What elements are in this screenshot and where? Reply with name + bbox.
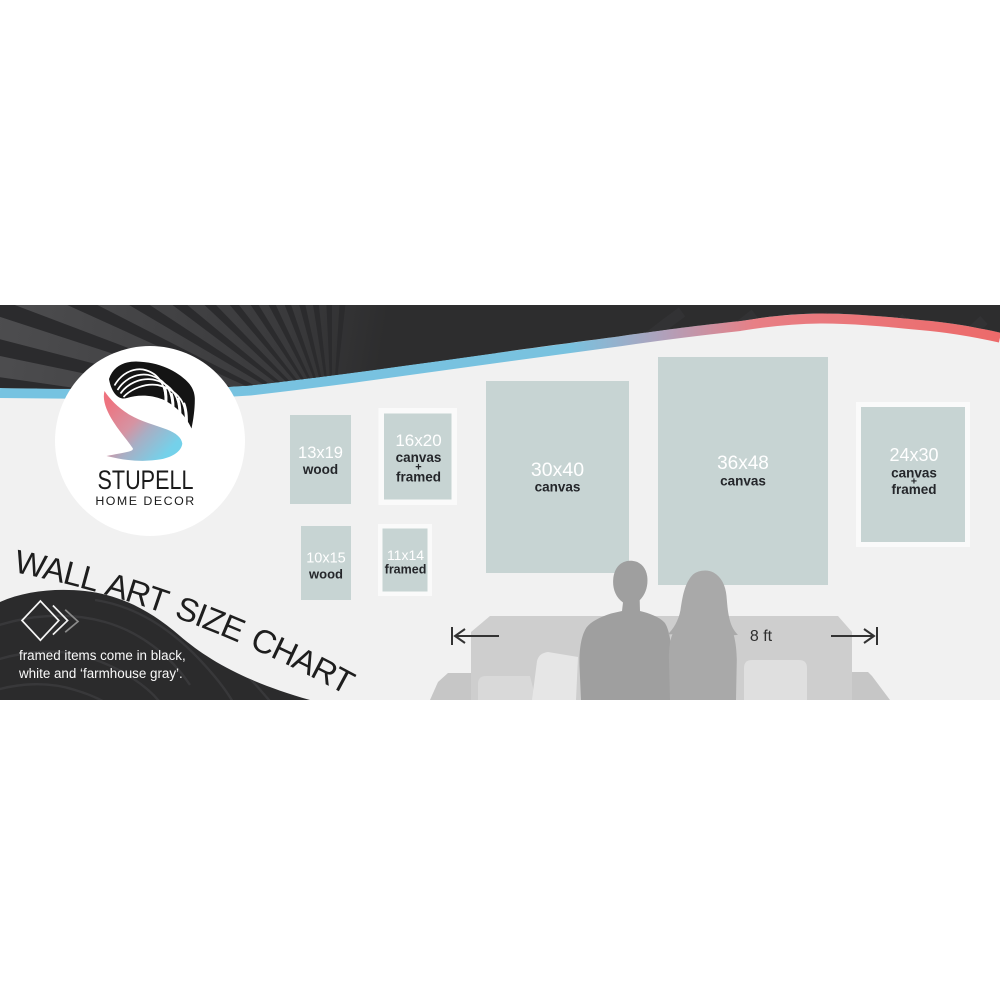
svg-text:11x14: 11x14 (387, 547, 424, 563)
svg-text:wood: wood (302, 462, 338, 477)
svg-text:10x15: 10x15 (306, 551, 346, 567)
svg-text:framed: framed (891, 482, 936, 497)
svg-text:STUPELL: STUPELL (98, 466, 194, 496)
svg-text:white and ‘farmhouse gray’.: white and ‘farmhouse gray’. (18, 666, 183, 681)
svg-text:framed items come in black,: framed items come in black, (19, 648, 186, 663)
svg-text:36x48: 36x48 (717, 453, 769, 474)
svg-text:framed: framed (396, 470, 441, 485)
svg-text:30x40: 30x40 (531, 459, 584, 481)
svg-text:8 ft: 8 ft (750, 628, 773, 645)
svg-text:framed: framed (385, 563, 427, 577)
svg-text:13x19: 13x19 (298, 444, 343, 462)
svg-text:HOME DECOR: HOME DECOR (95, 494, 195, 508)
svg-text:24x30: 24x30 (889, 445, 938, 465)
svg-text:canvas: canvas (720, 474, 766, 489)
svg-text:wood: wood (308, 567, 343, 582)
svg-text:canvas: canvas (535, 480, 581, 495)
svg-text:16x20: 16x20 (395, 431, 441, 450)
